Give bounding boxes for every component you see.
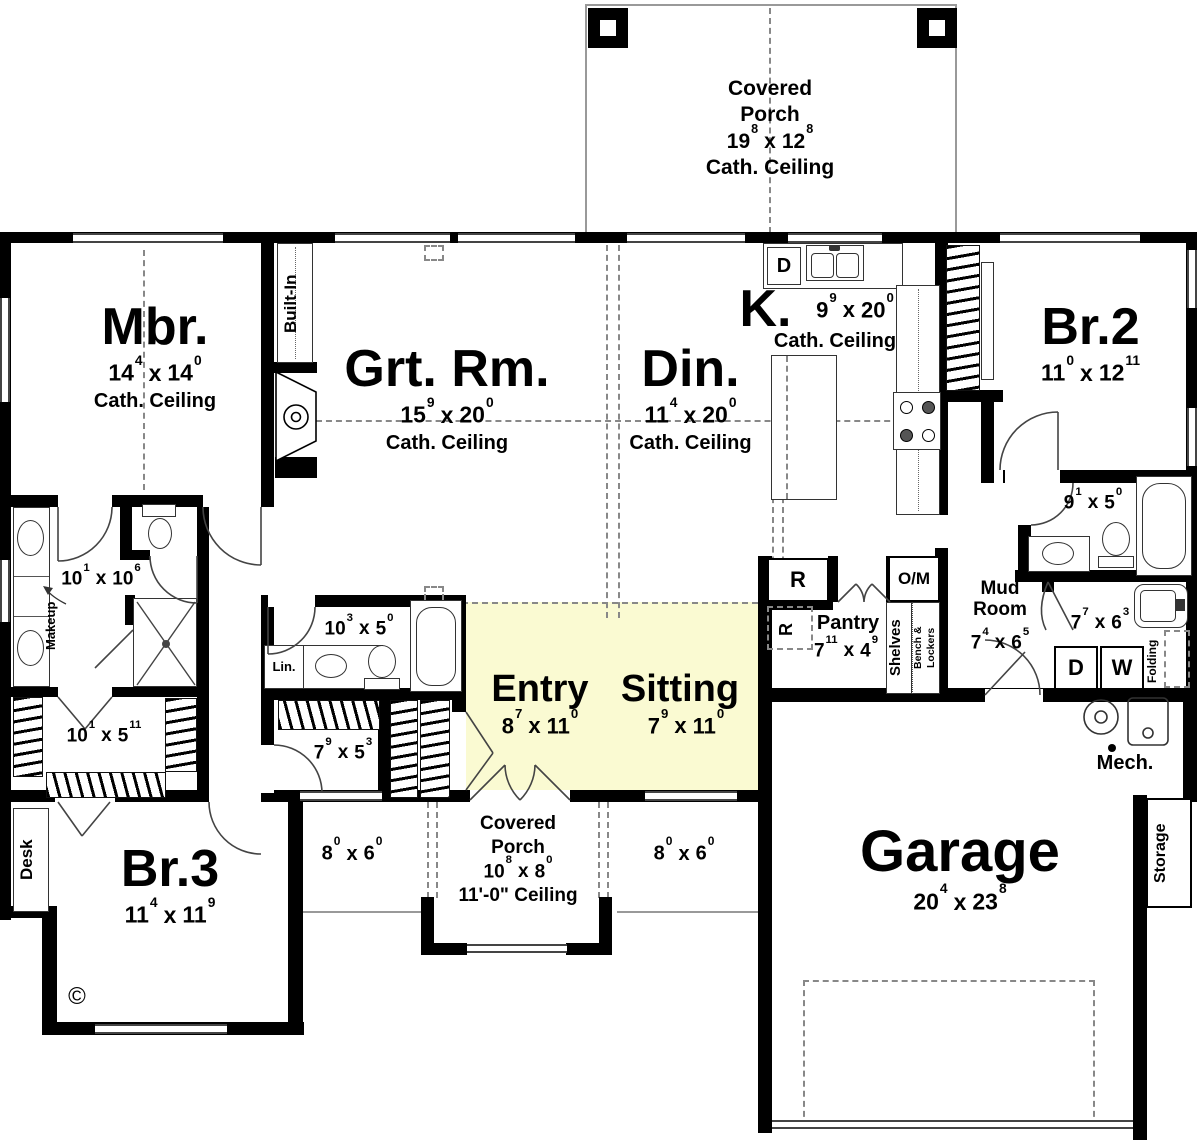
sitting-name: Sitting xyxy=(610,668,750,711)
door-opening-mbath xyxy=(58,495,112,507)
mbr-name: Mbr. xyxy=(50,298,260,356)
hallbath-tub xyxy=(410,600,462,692)
wall-pantry-stub-1 xyxy=(828,556,838,602)
window-mbath-left xyxy=(0,560,10,622)
porch-front-wall-r2 xyxy=(566,943,612,955)
window-kitchen-top xyxy=(788,233,882,243)
room-porch-top: Covered Porch 198x128 Cath. Ceiling xyxy=(645,76,895,181)
room-din: Din. 114x200 Cath. Ceiling xyxy=(598,340,783,454)
mud-name-1: Mud xyxy=(950,578,1050,599)
sink-faucet xyxy=(829,245,840,251)
porch-post-right xyxy=(917,8,957,48)
window-grt-top-2 xyxy=(458,233,575,243)
window-din-top xyxy=(627,233,745,243)
hall-bath-dim: 103x50 xyxy=(308,618,410,640)
hall-closet-dim: 79x53 xyxy=(300,742,386,764)
wall-br2closet-bottom xyxy=(943,390,1003,402)
br2-dim: 110x1211 xyxy=(1008,360,1173,386)
bath2-sink xyxy=(1042,542,1074,565)
hallbath-sink xyxy=(315,654,347,678)
vanity-divider-1 xyxy=(14,576,49,577)
window-mbr-left xyxy=(0,298,10,402)
porch-front-name-2: Porch xyxy=(438,836,598,860)
door-opening-bath2 xyxy=(1018,483,1031,525)
door-opening-mbr xyxy=(203,495,261,507)
island-overhang-line xyxy=(786,356,788,499)
porch-left-dim: 80x60 xyxy=(298,842,406,865)
washer-label: W xyxy=(1112,656,1133,681)
br2-closet-rod xyxy=(946,245,980,391)
din-name: Din. xyxy=(598,340,783,398)
porch-front-wall-l2 xyxy=(421,943,467,955)
pantry-dim: 711x49 xyxy=(798,640,894,662)
porch-right-dim: 80x60 xyxy=(630,842,738,865)
bench-label-2: Lockers xyxy=(926,604,939,692)
dryer: D xyxy=(1054,646,1098,690)
master-toilet-bowl xyxy=(148,518,172,549)
door-opening-hallbath xyxy=(268,595,315,607)
garage-dim: 204x238 xyxy=(840,889,1080,915)
din-dim: 114x200 xyxy=(598,402,783,428)
porch-front-note: 11'-0" Ceiling xyxy=(438,884,598,908)
hallbath-toilet-tank xyxy=(364,678,400,690)
mcloset-rod-bottom xyxy=(46,772,166,798)
garage-door-sill xyxy=(772,1120,1133,1129)
room-porch-front: Covered Porch 108x80 11'-0" Ceiling xyxy=(438,812,598,907)
oven-microwave: O/M xyxy=(888,556,940,602)
room-mbr: Mbr. 144x140 Cath. Ceiling xyxy=(50,298,260,412)
porch-top-name-2: Porch xyxy=(645,102,895,128)
hallbath-toilet-bowl xyxy=(368,645,396,678)
br3-name: Br.3 xyxy=(95,840,245,898)
sitting-dim: 79x110 xyxy=(630,714,742,739)
floor-plan: D R O/M R D W xyxy=(0,0,1200,1140)
master-bath-dim: 101x106 xyxy=(55,568,147,590)
fireplace xyxy=(276,372,316,461)
washer: W xyxy=(1100,646,1144,690)
range xyxy=(893,392,941,450)
oven-microwave-label: O/M xyxy=(898,569,930,588)
bath2-tub-basin xyxy=(1142,483,1186,569)
br2-closet-door-slab xyxy=(981,262,994,380)
porch-post-left xyxy=(588,8,628,48)
kitchen-sink xyxy=(806,245,864,281)
grt-note: Cath. Ceiling xyxy=(318,432,576,454)
wall-br2-west-lower xyxy=(981,390,994,483)
porch-post-right-core xyxy=(929,20,945,36)
grt-dim: 159x200 xyxy=(318,402,576,428)
grt-name: Grt. Rm. xyxy=(318,340,576,398)
makeup-label: Makeup xyxy=(44,590,64,662)
room-garage: Garage 204x238 xyxy=(840,820,1080,915)
door-opening-mcloset xyxy=(58,687,112,697)
room-br2: Br.2 110x1211 xyxy=(1008,298,1173,387)
door-opening-coatcloset xyxy=(452,712,466,790)
wall-mech-right xyxy=(1183,690,1197,802)
master-closet-dim: 101x511 xyxy=(50,725,158,747)
linen-cabinet: Lin. xyxy=(264,645,304,689)
room-br3: Br.3 114x119 xyxy=(95,840,245,929)
door-opening-mud-garage xyxy=(985,689,1043,702)
wall-br3-right xyxy=(288,798,303,1035)
window-br2-right-2 xyxy=(1187,408,1197,466)
porch-front-dash-3 xyxy=(598,802,600,898)
burner-1 xyxy=(900,401,913,414)
linen-label: Lin. xyxy=(272,660,295,675)
copyright-mark: © xyxy=(63,984,91,1011)
porch-top-dim: 198x128 xyxy=(645,129,895,155)
wall-fireplace-stub-top xyxy=(273,362,317,373)
porch-front-name-1: Covered xyxy=(438,812,598,836)
sink-basin-right xyxy=(836,253,859,278)
door-opening-br2 xyxy=(1005,470,1060,483)
laundry-dim: 77x63 xyxy=(1050,612,1150,634)
burner-3 xyxy=(900,429,913,442)
garage-name: Garage xyxy=(840,820,1080,885)
porch-top-name-1: Covered xyxy=(645,76,895,102)
porch-front-dim: 108x80 xyxy=(438,860,598,884)
mud-name-2: Room xyxy=(950,599,1050,620)
refrigerator-label: R xyxy=(790,568,806,593)
bath2-toilet-tank xyxy=(1098,556,1134,568)
din-note: Cath. Ceiling xyxy=(598,432,783,454)
window-mbr-top xyxy=(73,233,223,243)
porch-top-note: Cath. Ceiling xyxy=(645,155,895,181)
kitchen-dim: 99x200 xyxy=(800,298,910,323)
built-in-label: Built-In xyxy=(281,250,309,358)
wall-mbath-east xyxy=(197,495,209,800)
ceiling-break-sitting xyxy=(462,602,758,604)
bath2-tub xyxy=(1136,476,1192,576)
br3-dim: 114x119 xyxy=(95,902,245,928)
shelves-label: Shelves xyxy=(888,604,910,692)
wall-left-lower xyxy=(42,918,57,1026)
wall-garage-top xyxy=(758,688,1197,702)
window-br2-top xyxy=(1000,233,1140,243)
master-sink-1 xyxy=(17,520,44,556)
column-marker-top xyxy=(424,245,444,261)
coatcloset-rod-2 xyxy=(420,700,450,798)
pantry-name: Pantry xyxy=(806,612,890,634)
refrigerator: R xyxy=(767,558,829,602)
master-sink-2 xyxy=(17,630,44,666)
folding-label: Folding xyxy=(1146,628,1164,694)
mcloset-rod-left xyxy=(13,697,43,777)
mech-equipment xyxy=(1084,698,1168,752)
bath2-dim: 91x50 xyxy=(1038,492,1148,514)
mech-label: Mech. xyxy=(1080,752,1170,774)
dryer-label: D xyxy=(1068,656,1084,681)
master-toilet-tank xyxy=(142,504,176,517)
storage-label: Storage xyxy=(1152,806,1186,900)
tub-basin xyxy=(416,607,456,686)
br2-name: Br.2 xyxy=(1008,298,1173,356)
room-grt: Grt. Rm. 159x200 Cath. Ceiling xyxy=(318,340,576,454)
bath2-toilet-bowl xyxy=(1102,522,1130,556)
master-shower xyxy=(133,598,197,687)
mcloset-rod-right xyxy=(165,698,197,772)
window-grt-top-1 xyxy=(335,233,450,243)
window-br3-bottom xyxy=(95,1024,227,1034)
door-opening-front xyxy=(470,790,570,802)
window-br2-right-1 xyxy=(1187,250,1197,308)
entry-name: Entry xyxy=(484,668,596,711)
dishwasher-label: D xyxy=(777,255,791,277)
burner-4 xyxy=(922,429,935,442)
mbr-dim: 144x140 xyxy=(50,360,260,386)
sink-basin-left xyxy=(811,253,834,278)
mbr-note: Cath. Ceiling xyxy=(50,390,260,412)
burner-2 xyxy=(922,401,935,414)
porch-front-dash-4 xyxy=(607,802,609,898)
window-hallcloset-front xyxy=(300,791,382,801)
porch-post-left-core xyxy=(600,20,616,36)
wall-wc-south xyxy=(120,550,150,560)
fridge-space-label: R xyxy=(776,610,800,650)
wall-fireplace-stub-bottom xyxy=(275,457,317,478)
door-opening-hallcloset xyxy=(261,745,274,793)
coatcloset-rod-1 xyxy=(390,700,418,798)
wall-garage-right xyxy=(1133,795,1147,1140)
porch-front-dash-1 xyxy=(427,802,429,898)
utility-sink-faucet xyxy=(1176,599,1185,611)
porch-left-edge xyxy=(303,911,422,913)
mud-dim: 74x65 xyxy=(947,632,1053,654)
garage-door-ceiling xyxy=(803,980,1095,1127)
entry-dim: 87x110 xyxy=(484,714,596,739)
porch-right-edge xyxy=(617,911,759,913)
door-opening-br3-hall xyxy=(209,790,261,802)
folding-counter xyxy=(1164,630,1190,688)
kitchen-note: Cath. Ceiling xyxy=(765,330,905,352)
porch-front-step xyxy=(467,944,567,953)
desk-label: Desk xyxy=(17,816,45,904)
window-sitting-front xyxy=(645,791,737,801)
hallcloset-rod xyxy=(278,700,380,730)
room-mud: Mud Room xyxy=(950,578,1050,621)
